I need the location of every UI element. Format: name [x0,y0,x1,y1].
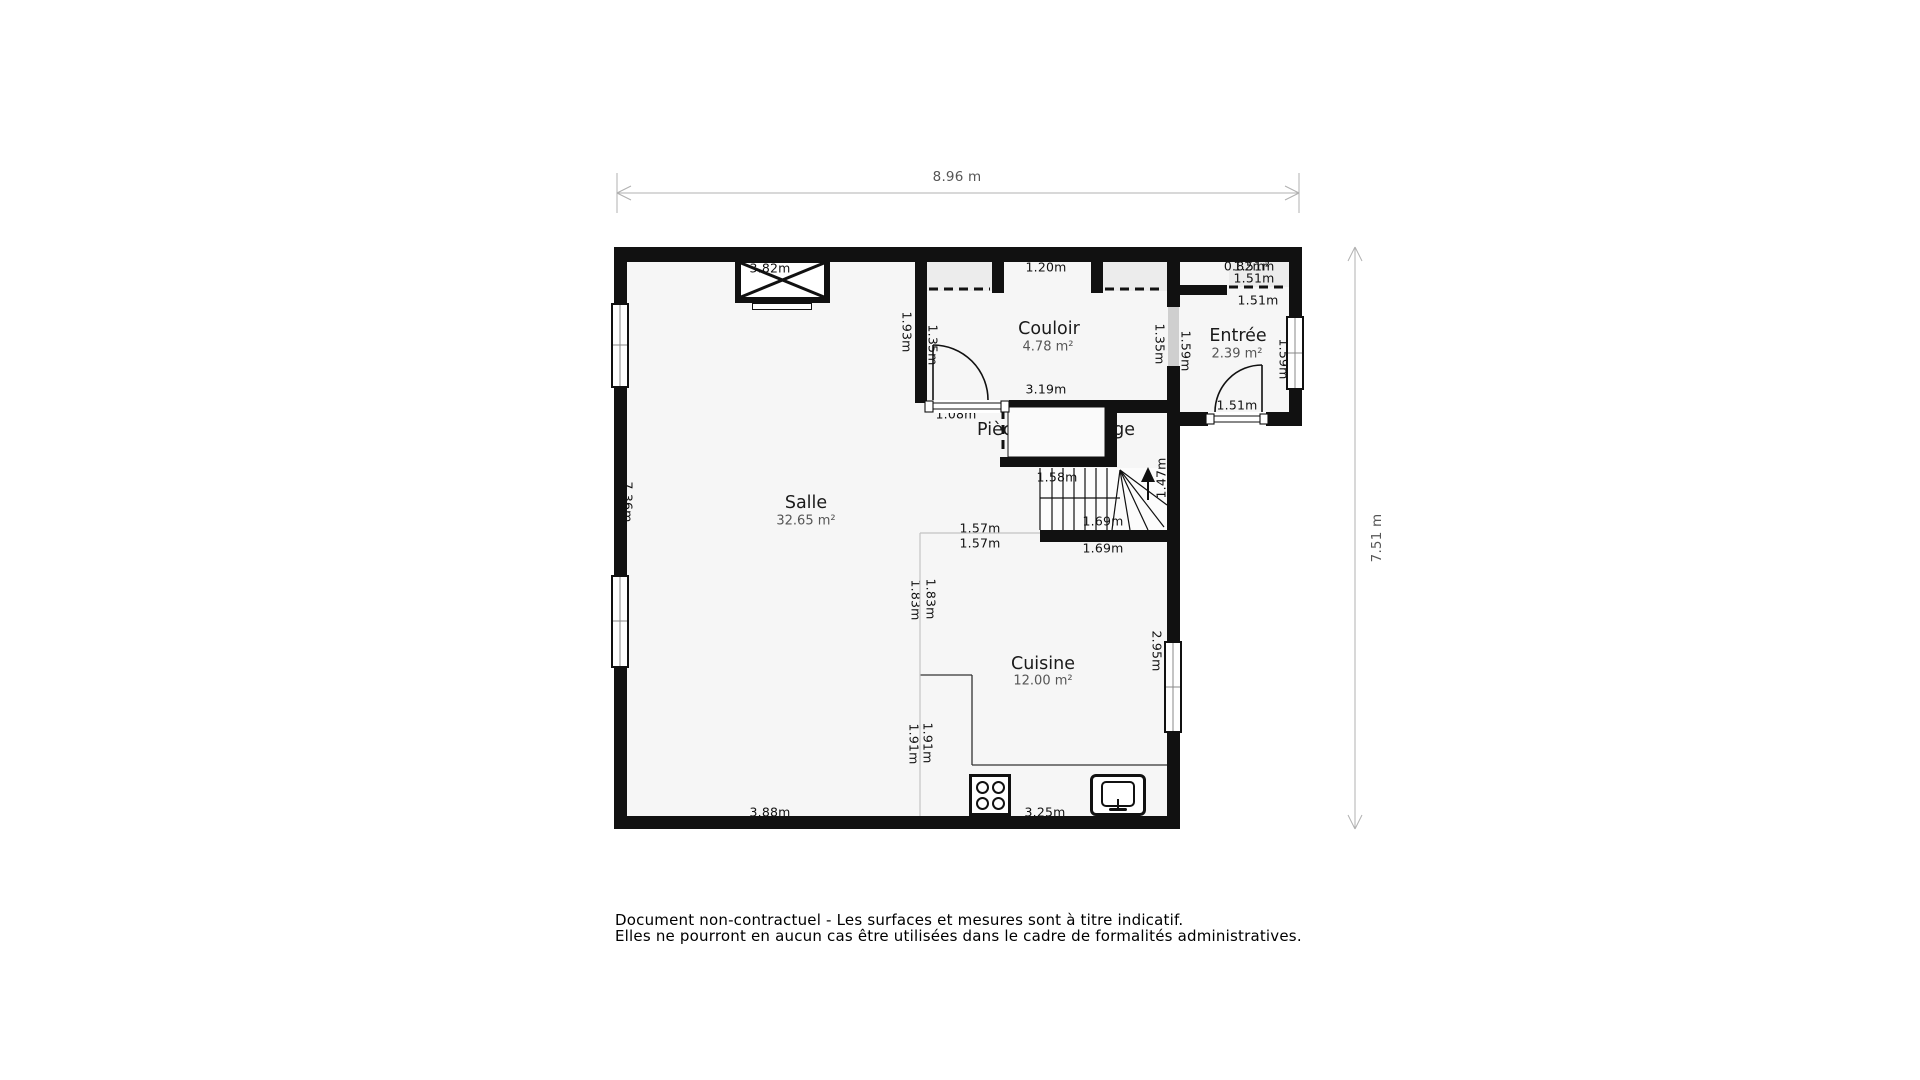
dim-label: 1.35m [1153,323,1168,364]
dim-label: 1.58m [1036,470,1077,485]
dim-label: 1.51m [1216,398,1257,413]
dim-label: 1.35m [926,324,941,365]
wall-closet-jamb-1 [992,262,1004,293]
wall-right-lower-b [1167,731,1180,816]
dim-label: 1.59m [1179,330,1194,371]
dim-label: 1.91m [907,723,922,764]
overall-width-label: 8.96 m [933,169,982,185]
stove-icon [969,774,1011,816]
wall-couloir-bottom [1008,400,1180,413]
burner-icon [976,781,989,794]
wall-closet-jamb-2 [1091,262,1103,293]
wall-left-c [614,666,627,829]
wall-stockage-bottom [1000,457,1107,467]
wall-left-a [614,247,627,307]
dim-label: 1.69m [1082,541,1123,556]
window-cuisine-right [1164,641,1182,733]
door-threshold-couloir [927,400,1009,413]
room-area-couloir: 4.78 m² [1023,340,1074,355]
wall-entree-inner [1180,285,1227,295]
wall-entree-bottom-right [1266,412,1302,426]
floor-plan-page: 8.96 m 7.51 m Salle 32.65 m² Couloir 4.7… [0,0,1920,1080]
wall-right-lower-a [1167,400,1180,644]
room-name-entree: Entrée [1209,326,1266,346]
room-area-entree: 2.39 m² [1212,347,1263,362]
window-left-upper [611,303,629,388]
dim-label: 3.82m [749,261,790,276]
wall-top [614,247,1302,262]
wall-bottom [614,816,1180,829]
dim-label: 1.57m [959,521,1000,536]
disclaimer: Document non-contractuel - Les surfaces … [615,913,1302,944]
wall-couloir-entree-b [1167,366,1180,412]
room-name-couloir: Couloir [1018,319,1080,339]
chimney-hearth [752,303,812,310]
dim-label: 1.93m [900,311,915,352]
dim-label: 1.69m [1082,514,1123,529]
sink-icon [1090,774,1146,816]
dim-label: 2.95m [1150,630,1165,671]
room-name-salle: Salle [785,493,827,513]
window-entree-right [1286,316,1304,390]
overall-height-label: 7.51 m [1369,514,1385,563]
dim-label: 3.19m [1025,382,1066,397]
room-area-cuisine: 12.00 m² [1013,674,1072,689]
dim-label: 1.51m [1237,293,1278,308]
burner-icon [992,797,1005,810]
dim-label: 1.51m [1233,271,1274,286]
wall-entree-right-a [1289,247,1302,318]
closet-couloir-right [1103,262,1167,291]
dim-label: 1.91m [921,722,936,763]
dim-label: 1.83m [909,579,924,620]
door-panel-couloir-entree [1168,307,1179,366]
closet-couloir-left [927,262,992,291]
burner-icon [976,797,989,810]
dim-label: 1.57m [959,536,1000,551]
disclaimer-line-2: Elles ne pourront en aucun cas être util… [615,929,1302,945]
room-area-salle: 32.65 m² [776,514,835,529]
burner-icon [992,781,1005,794]
dimension-line-right [1348,247,1362,829]
door-threshold-entree [1208,412,1266,426]
sink-tap-base-icon [1109,808,1127,811]
wall-entree-bottom-left [1180,412,1208,426]
dim-label: 1.83m [924,578,939,619]
wall-couloir-entree-a [1167,262,1180,307]
window-left-lower [611,575,629,668]
wall-left-b [614,386,627,578]
wall-stair-bottom [1040,530,1180,542]
room-name-cuisine: Cuisine [1011,654,1075,674]
wall-couloir-left [915,262,927,403]
wall-stockage-right [1105,400,1117,467]
